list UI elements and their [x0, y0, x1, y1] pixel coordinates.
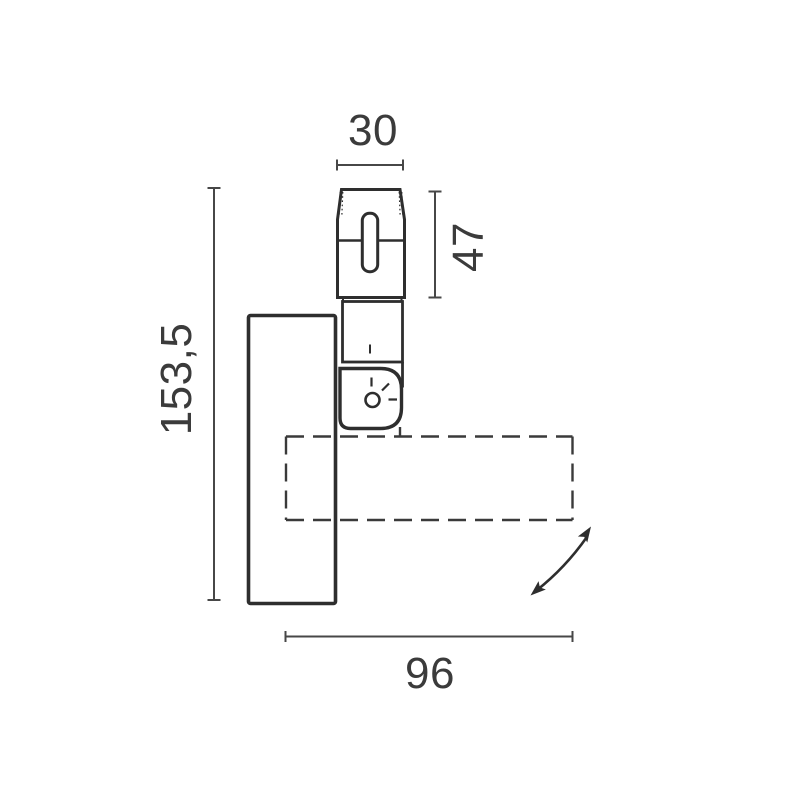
spindle-housing — [338, 190, 405, 302]
rotation-arrow-icon — [527, 523, 596, 599]
dimension-line-total-height — [208, 188, 221, 600]
connector-block-outline — [343, 302, 403, 363]
dimension-label-total-height: 153,5 — [155, 323, 199, 436]
rotation-arc — [537, 538, 587, 591]
technical-drawing-canvas — [0, 0, 799, 800]
spindle-slot — [362, 213, 377, 271]
dimension-line-handle-length — [286, 631, 573, 642]
technical-drawing-page: 30 47 153,5 96 — [0, 0, 799, 800]
handle-grip-vertical — [249, 316, 336, 604]
dimension-line-housing-height — [429, 192, 442, 298]
pivot-hub — [340, 369, 402, 429]
dimension-line-housing-width — [337, 160, 403, 171]
dimension-label-handle-length: 96 — [405, 652, 455, 696]
dimension-label-housing-height: 47 — [447, 222, 491, 272]
dimension-label-housing-width: 30 — [348, 109, 398, 153]
rotation-arrowhead-up — [578, 523, 596, 542]
